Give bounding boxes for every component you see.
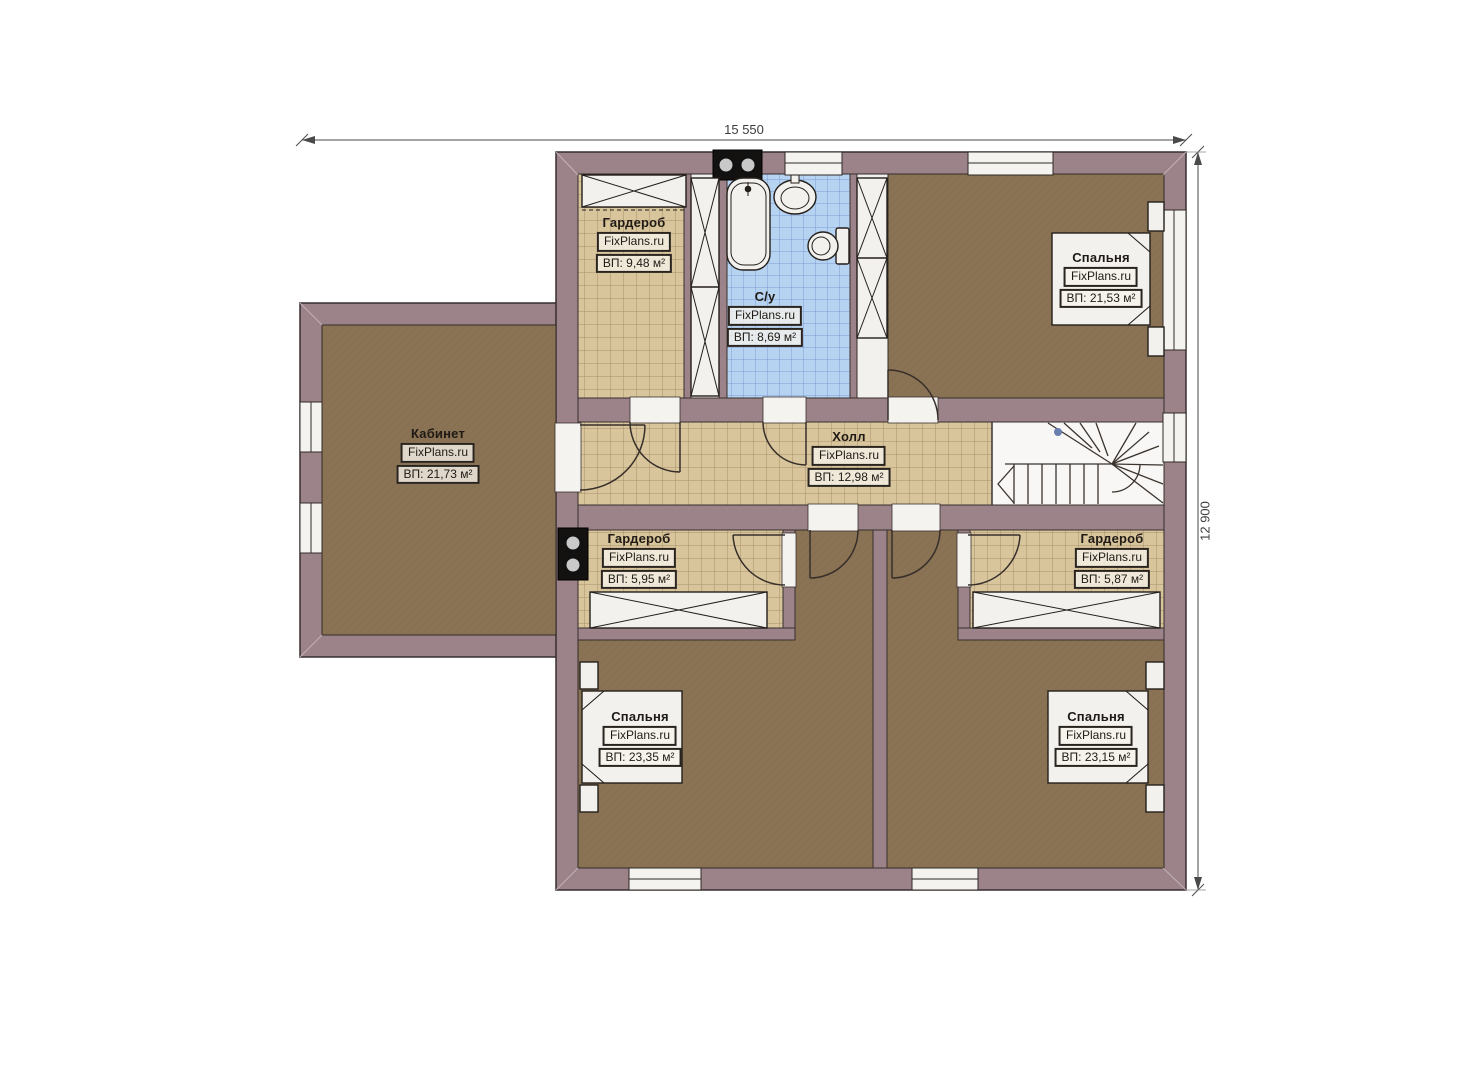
room-area-box: ВП: 8,69 м² bbox=[727, 328, 803, 348]
wardrobe-column-2 bbox=[857, 178, 887, 338]
window-bottom-left bbox=[629, 868, 701, 890]
window-top-su bbox=[785, 152, 842, 175]
room-site-box: FixPlans.ru bbox=[602, 548, 676, 568]
room-site-box: FixPlans.ru bbox=[1064, 267, 1138, 287]
nightstand bbox=[1146, 662, 1164, 689]
window-kabinet-upper bbox=[300, 402, 322, 452]
room-area-box: ВП: 21,73 м² bbox=[397, 465, 480, 485]
nightstand bbox=[580, 662, 598, 689]
room-name: С/у bbox=[755, 289, 776, 304]
room-label-garderob-top-left: Гардероб FixPlans.ru ВП: 9,48 м² bbox=[596, 215, 672, 273]
door-opening-kabinet bbox=[555, 423, 581, 492]
room-name: Гардероб bbox=[602, 215, 665, 230]
chimney-left bbox=[558, 528, 588, 580]
window-right-bedroom-top bbox=[1163, 210, 1186, 350]
room-name: Спальня bbox=[1067, 709, 1125, 724]
room-area-box: ВП: 5,95 м² bbox=[601, 570, 677, 590]
room-site-box: FixPlans.ru bbox=[597, 232, 671, 252]
room-area-box: ВП: 23,35 м² bbox=[599, 748, 682, 768]
nightstand bbox=[1148, 202, 1164, 231]
room-site-box: FixPlans.ru bbox=[401, 443, 475, 463]
room-area-box: ВП: 23,15 м² bbox=[1055, 748, 1138, 768]
room-area-box: ВП: 21,53 м² bbox=[1060, 289, 1143, 309]
nightstand bbox=[580, 785, 598, 812]
room-site-box: FixPlans.ru bbox=[1075, 548, 1149, 568]
room-name: Спальня bbox=[611, 709, 669, 724]
floor-holl bbox=[578, 422, 992, 505]
room-area-box: ВП: 9,48 м² bbox=[596, 254, 672, 274]
room-label-bedroom-bottom-right: Спальня FixPlans.ru ВП: 23,15 м² bbox=[1055, 709, 1138, 767]
chimney-top bbox=[713, 150, 762, 180]
room-area-box: ВП: 5,87 м² bbox=[1074, 570, 1150, 590]
room-name: Холл bbox=[832, 429, 865, 444]
floor-plan-drawing bbox=[0, 0, 1473, 1080]
door-opening-su bbox=[763, 397, 806, 423]
door-opening-bedroom-bl bbox=[808, 504, 858, 531]
window-bottom-right bbox=[912, 868, 978, 890]
room-name: Кабинет bbox=[411, 426, 465, 441]
window-top-bedroom bbox=[968, 152, 1053, 175]
bathtub bbox=[727, 178, 770, 270]
room-label-garderob-mid-right: Гардероб FixPlans.ru ВП: 5,87 м² bbox=[1074, 531, 1150, 589]
room-site-box: FixPlans.ru bbox=[812, 446, 886, 466]
room-area-box: ВП: 12,98 м² bbox=[808, 468, 891, 488]
room-site-box: FixPlans.ru bbox=[603, 726, 677, 746]
wardrobe-garderob-ml bbox=[590, 592, 767, 628]
door-opening-garderob-mr bbox=[957, 533, 971, 587]
wardrobe-garderob-tl bbox=[582, 175, 686, 210]
room-site-box: FixPlans.ru bbox=[1059, 726, 1133, 746]
window-right-stairwell bbox=[1163, 413, 1186, 462]
room-site-box: FixPlans.ru bbox=[728, 306, 802, 326]
room-label-bedroom-top-right: Спальня FixPlans.ru ВП: 21,53 м² bbox=[1060, 250, 1143, 308]
room-name: Спальня bbox=[1072, 250, 1130, 265]
door-opening-bedroom-tr bbox=[888, 397, 938, 423]
room-label-su: С/у FixPlans.ru ВП: 8,69 м² bbox=[727, 289, 803, 347]
dimension-height-label: 12 900 bbox=[1198, 501, 1213, 541]
nightstand bbox=[1146, 785, 1164, 812]
door-opening-garderob-tl bbox=[630, 397, 680, 423]
room-label-garderob-mid-left: Гардероб FixPlans.ru ВП: 5,95 м² bbox=[601, 531, 677, 589]
window-kabinet-lower bbox=[300, 503, 322, 553]
room-label-bedroom-bottom-left: Спальня FixPlans.ru ВП: 23,35 м² bbox=[599, 709, 682, 767]
room-name: Гардероб bbox=[1080, 531, 1143, 546]
room-name: Гардероб bbox=[607, 531, 670, 546]
wardrobe-garderob-mr bbox=[973, 592, 1160, 628]
floor-plan: 15 550 12 900 Гардероб FixPlans.ru ВП: 9… bbox=[0, 0, 1473, 1080]
room-label-kabinet: Кабинет FixPlans.ru ВП: 21,73 м² bbox=[397, 426, 480, 484]
stair-walkline-dot bbox=[1054, 428, 1062, 436]
door-opening-garderob-ml bbox=[782, 533, 796, 587]
dimension-width-label: 15 550 bbox=[724, 122, 764, 137]
room-label-holl: Холл FixPlans.ru ВП: 12,98 м² bbox=[808, 429, 891, 487]
wardrobe-column-1 bbox=[691, 178, 719, 396]
nightstand bbox=[1148, 327, 1164, 356]
door-opening-bedroom-br bbox=[892, 504, 940, 531]
